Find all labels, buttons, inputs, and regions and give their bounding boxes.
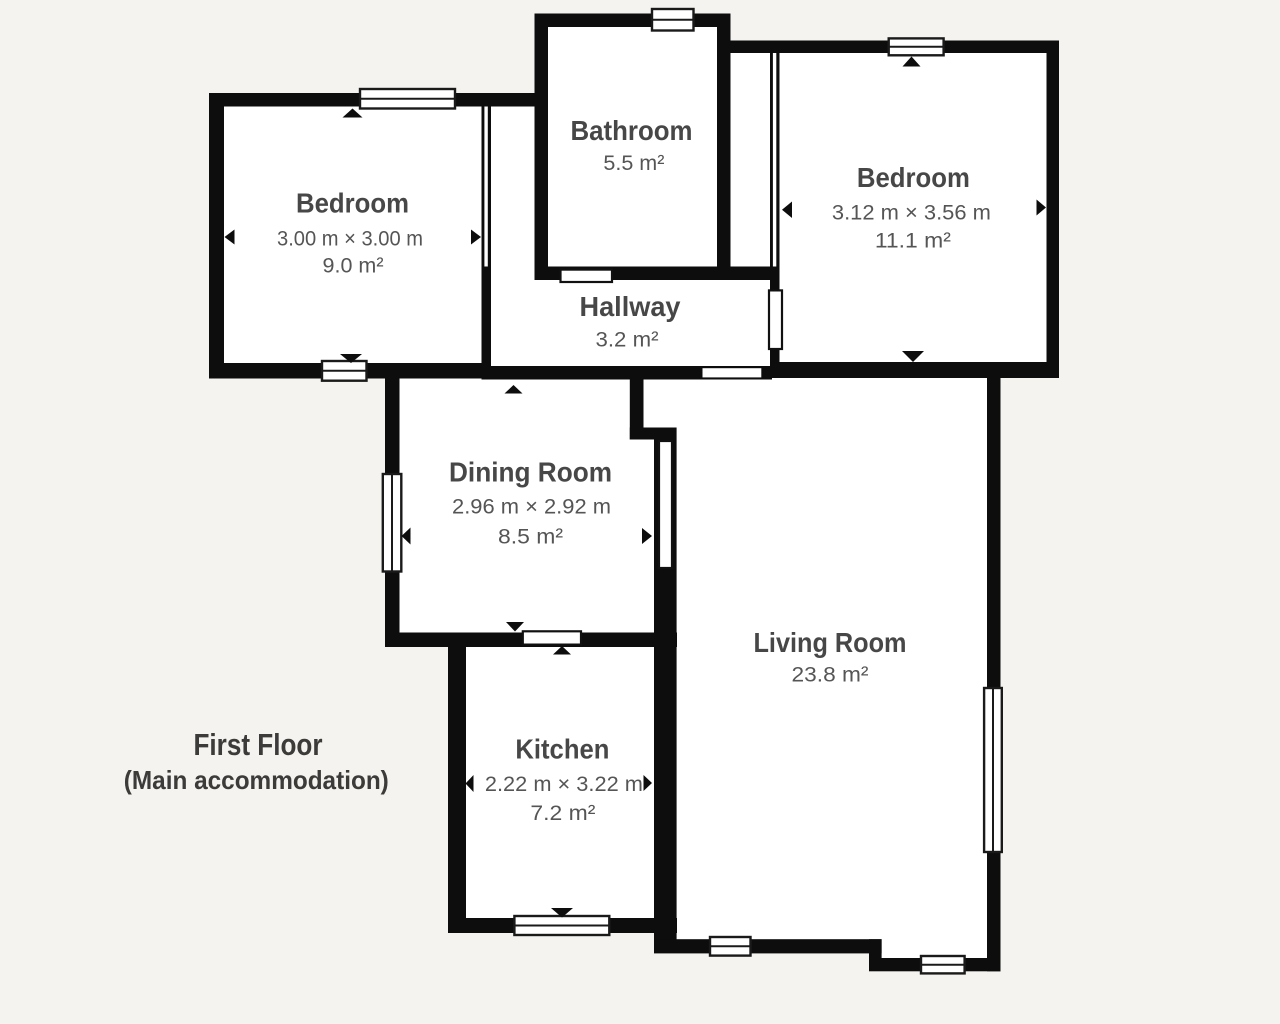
svg-text:Bedroom: Bedroom xyxy=(296,188,409,219)
svg-text:9.0 m²: 9.0 m² xyxy=(323,254,384,278)
svg-text:7.2 m²: 7.2 m² xyxy=(530,801,595,825)
svg-text:Kitchen: Kitchen xyxy=(515,734,609,765)
svg-text:Bathroom: Bathroom xyxy=(571,115,693,146)
svg-text:Living Room: Living Room xyxy=(754,627,907,658)
svg-text:11.1 m²: 11.1 m² xyxy=(875,229,951,253)
svg-text:(Main accommodation): (Main accommodation) xyxy=(124,765,389,795)
svg-text:23.8 m²: 23.8 m² xyxy=(792,663,869,687)
svg-text:3.12 m × 3.56 m: 3.12 m × 3.56 m xyxy=(832,201,991,225)
svg-text:2.22 m × 3.22 m: 2.22 m × 3.22 m xyxy=(485,772,643,796)
svg-text:3.2 m²: 3.2 m² xyxy=(596,328,659,352)
svg-text:3.00 m × 3.00 m: 3.00 m × 3.00 m xyxy=(277,227,423,251)
svg-text:Dining Room: Dining Room xyxy=(449,457,612,488)
svg-text:8.5 m²: 8.5 m² xyxy=(498,525,563,549)
svg-text:Bedroom: Bedroom xyxy=(857,162,970,193)
svg-text:2.96 m × 2.92 m: 2.96 m × 2.92 m xyxy=(452,495,611,519)
svg-text:5.5 m²: 5.5 m² xyxy=(603,151,664,175)
svg-text:First Floor: First Floor xyxy=(194,727,323,762)
svg-text:Hallway: Hallway xyxy=(580,291,681,322)
